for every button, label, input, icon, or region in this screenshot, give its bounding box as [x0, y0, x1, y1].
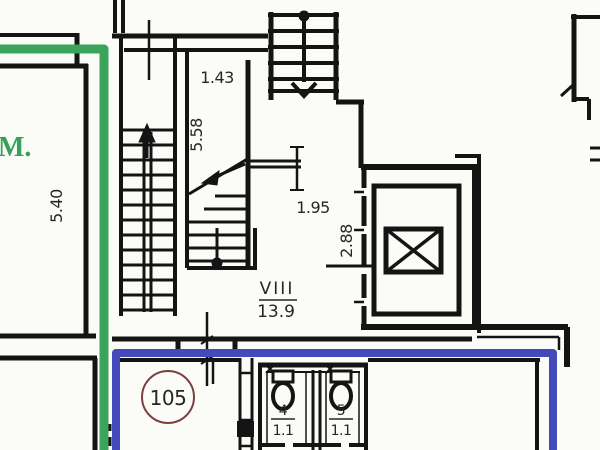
stair-flight-end-dot	[212, 258, 222, 268]
wc-right-area: 1.1	[326, 424, 356, 438]
stairwell-area: 13.9	[251, 304, 301, 321]
floor-plan: М. 5.40 1.43 5.58 1.95 2.88 VIII 13.9 10…	[0, 0, 600, 450]
dim-left-room: 5.40	[49, 176, 65, 236]
wc-left-number: 4	[268, 404, 298, 418]
partition-column	[237, 358, 254, 450]
dim-stair-room-height: 5.58	[189, 105, 205, 165]
wc-left-area: 1.1	[268, 424, 298, 438]
floor-plan-drawing	[0, 0, 600, 450]
top-right-structure	[561, 14, 600, 160]
left-room-walls	[0, 33, 110, 450]
wc-right-number: 5	[326, 404, 356, 418]
stairwell-number: VIII	[252, 281, 302, 298]
stair-up-arrow-icon	[139, 124, 155, 142]
stair-flight-start-dot	[299, 11, 309, 21]
green-region-label: М.	[0, 134, 31, 162]
right-building-edge	[455, 156, 568, 367]
main-staircase	[121, 124, 175, 312]
dim-lobby-opening: 1.95	[288, 200, 338, 216]
apartment-number: 105	[143, 388, 193, 408]
lobby-walls	[247, 146, 304, 191]
stair-direction-arrow-icon	[202, 171, 219, 185]
top-staircase	[268, 11, 364, 168]
dim-elevator: 2.88	[339, 211, 355, 271]
dim-stair-room-width: 1.43	[192, 70, 242, 86]
elevator-car-icon	[386, 229, 441, 272]
